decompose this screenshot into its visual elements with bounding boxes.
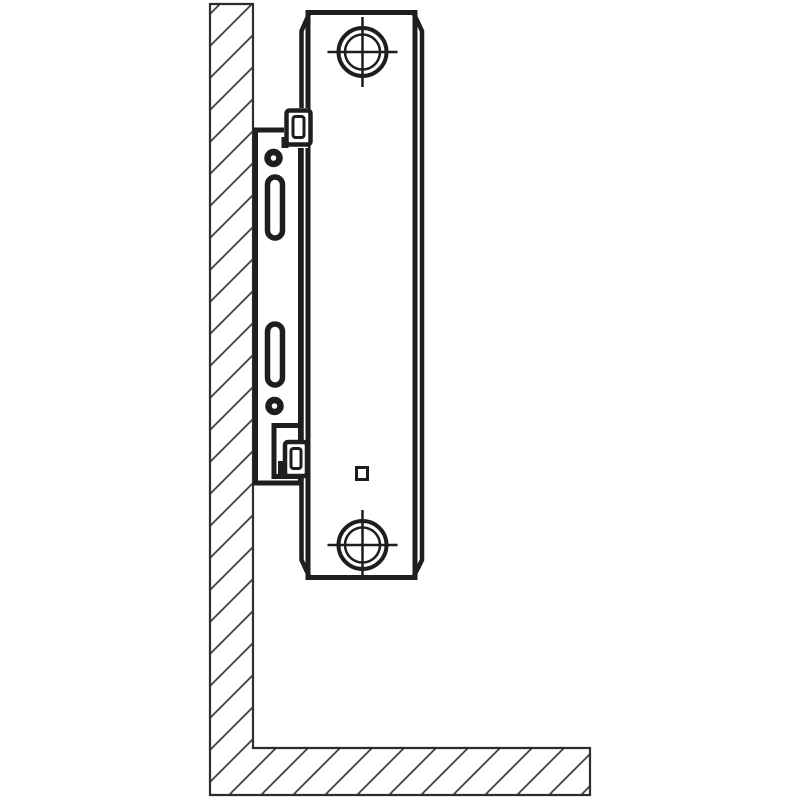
diagram-canvas bbox=[0, 0, 800, 800]
top-retaining-clip bbox=[282, 108, 311, 148]
bracket-slot-top bbox=[268, 177, 283, 238]
bracket-screw-hole-top bbox=[268, 152, 280, 164]
diagram-svg bbox=[0, 0, 800, 800]
bracket-screw-hole-bottom bbox=[269, 400, 281, 412]
radiator-body bbox=[308, 13, 415, 578]
bracket-slot-bottom bbox=[268, 324, 283, 385]
radiator-face-square-marker bbox=[357, 468, 368, 480]
